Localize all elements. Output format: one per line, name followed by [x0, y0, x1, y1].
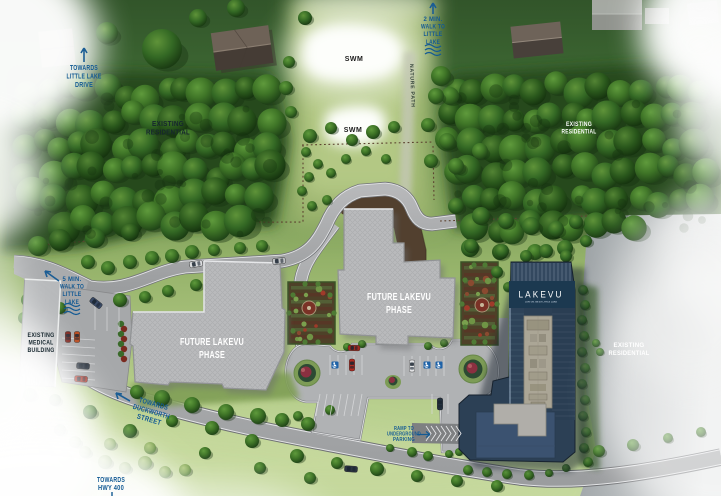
svg-text:EXISTING: EXISTING [28, 332, 55, 339]
svg-text:PHASE: PHASE [199, 349, 225, 361]
svg-text:RESIDENTIAL: RESIDENTIAL [146, 128, 190, 137]
svg-text:FUTURE LAKEVU: FUTURE LAKEVU [180, 336, 244, 348]
svg-text:EXISTING: EXISTING [566, 121, 592, 128]
svg-text:SWM: SWM [344, 127, 363, 134]
svg-text:FUTURE LAKEVU: FUTURE LAKEVU [367, 291, 431, 303]
svg-text:TOWARDS: TOWARDS [97, 477, 125, 484]
svg-text:DRIVE: DRIVE [75, 80, 93, 89]
svg-text:EXISTING: EXISTING [614, 342, 645, 349]
svg-text:PHASE: PHASE [386, 304, 412, 316]
svg-text:RESIDENTIAL: RESIDENTIAL [562, 129, 597, 136]
svg-text:2 MIN.: 2 MIN. [424, 16, 443, 23]
svg-text:LITTLE: LITTLE [63, 291, 82, 298]
svg-text:RESIDENTIAL: RESIDENTIAL [609, 350, 650, 357]
svg-text:PARKING: PARKING [393, 437, 415, 443]
svg-text:WALK TO: WALK TO [421, 24, 445, 31]
svg-text:LITTLE: LITTLE [424, 31, 443, 38]
svg-text:MEDICAL: MEDICAL [29, 339, 54, 346]
svg-text:WALK TO: WALK TO [60, 284, 84, 291]
svg-text:BUILDING: BUILDING [28, 347, 55, 354]
svg-text:LIVE ON. BE AT LITTLE LAKE: LIVE ON. BE AT LITTLE LAKE [525, 301, 558, 304]
svg-text:SWM: SWM [345, 56, 364, 63]
svg-text:HWY 400: HWY 400 [98, 485, 124, 492]
svg-text:5 MIN.: 5 MIN. [63, 276, 82, 283]
svg-text:LAKEVU: LAKEVU [519, 290, 564, 300]
